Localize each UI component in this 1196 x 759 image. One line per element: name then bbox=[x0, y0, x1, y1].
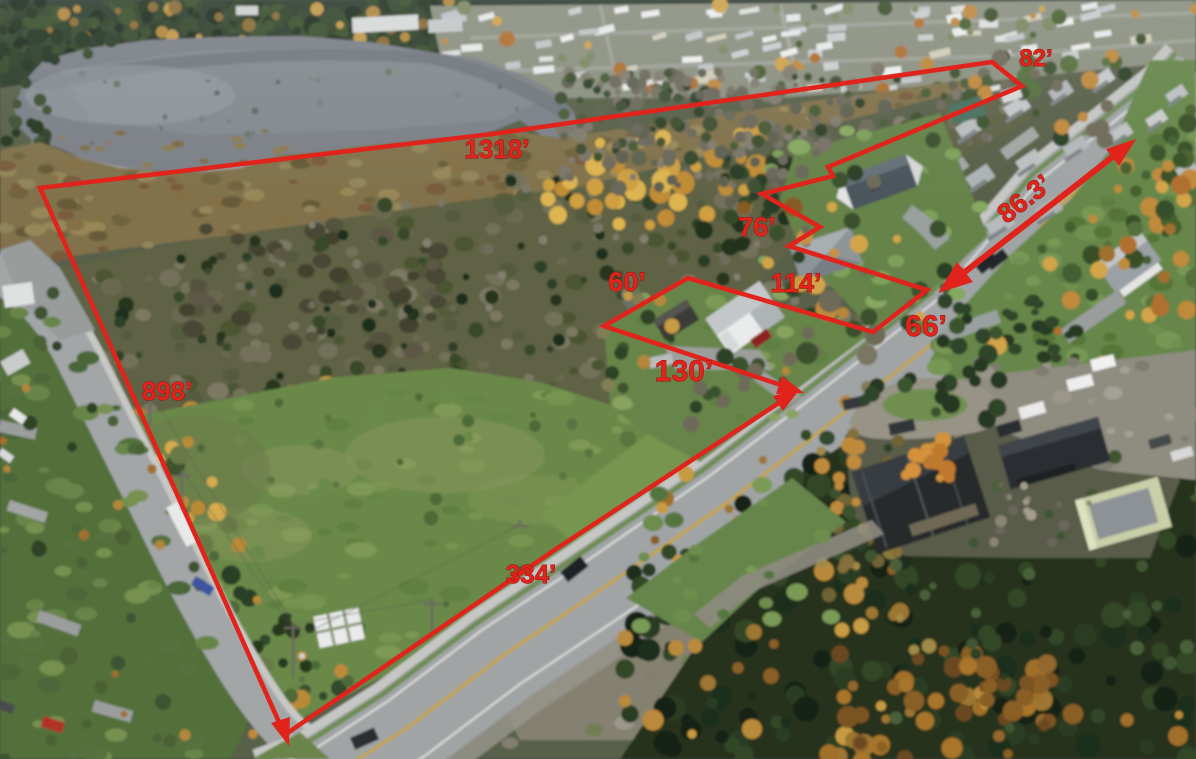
svg-text:1318’: 1318’ bbox=[464, 134, 529, 164]
svg-text:114’: 114’ bbox=[770, 268, 821, 298]
svg-text:82’: 82’ bbox=[1019, 45, 1052, 72]
svg-text:130’: 130’ bbox=[655, 355, 713, 388]
svg-text:76’: 76’ bbox=[738, 212, 776, 242]
svg-text:66’: 66’ bbox=[905, 310, 947, 343]
svg-text:898’: 898’ bbox=[142, 376, 193, 406]
svg-text:334’: 334’ bbox=[506, 559, 557, 589]
svg-text:60’: 60’ bbox=[608, 267, 646, 297]
